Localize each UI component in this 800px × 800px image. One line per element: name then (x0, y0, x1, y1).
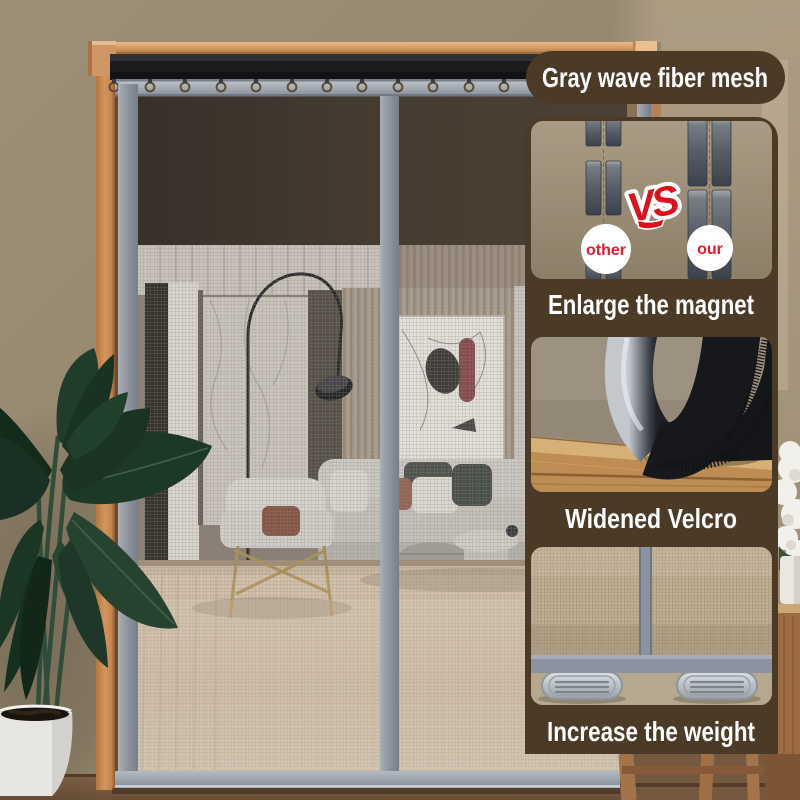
svg-text:other: other (586, 242, 626, 259)
svg-text:our: our (697, 241, 723, 258)
svg-text:Enlarge the magnet: Enlarge the magnet (548, 289, 754, 320)
svg-text:Widened Velcro: Widened Velcro (565, 503, 737, 534)
svg-text:Gray wave fiber mesh: Gray wave fiber mesh (542, 62, 768, 93)
svg-text:Increase the weight: Increase the weight (547, 716, 755, 747)
